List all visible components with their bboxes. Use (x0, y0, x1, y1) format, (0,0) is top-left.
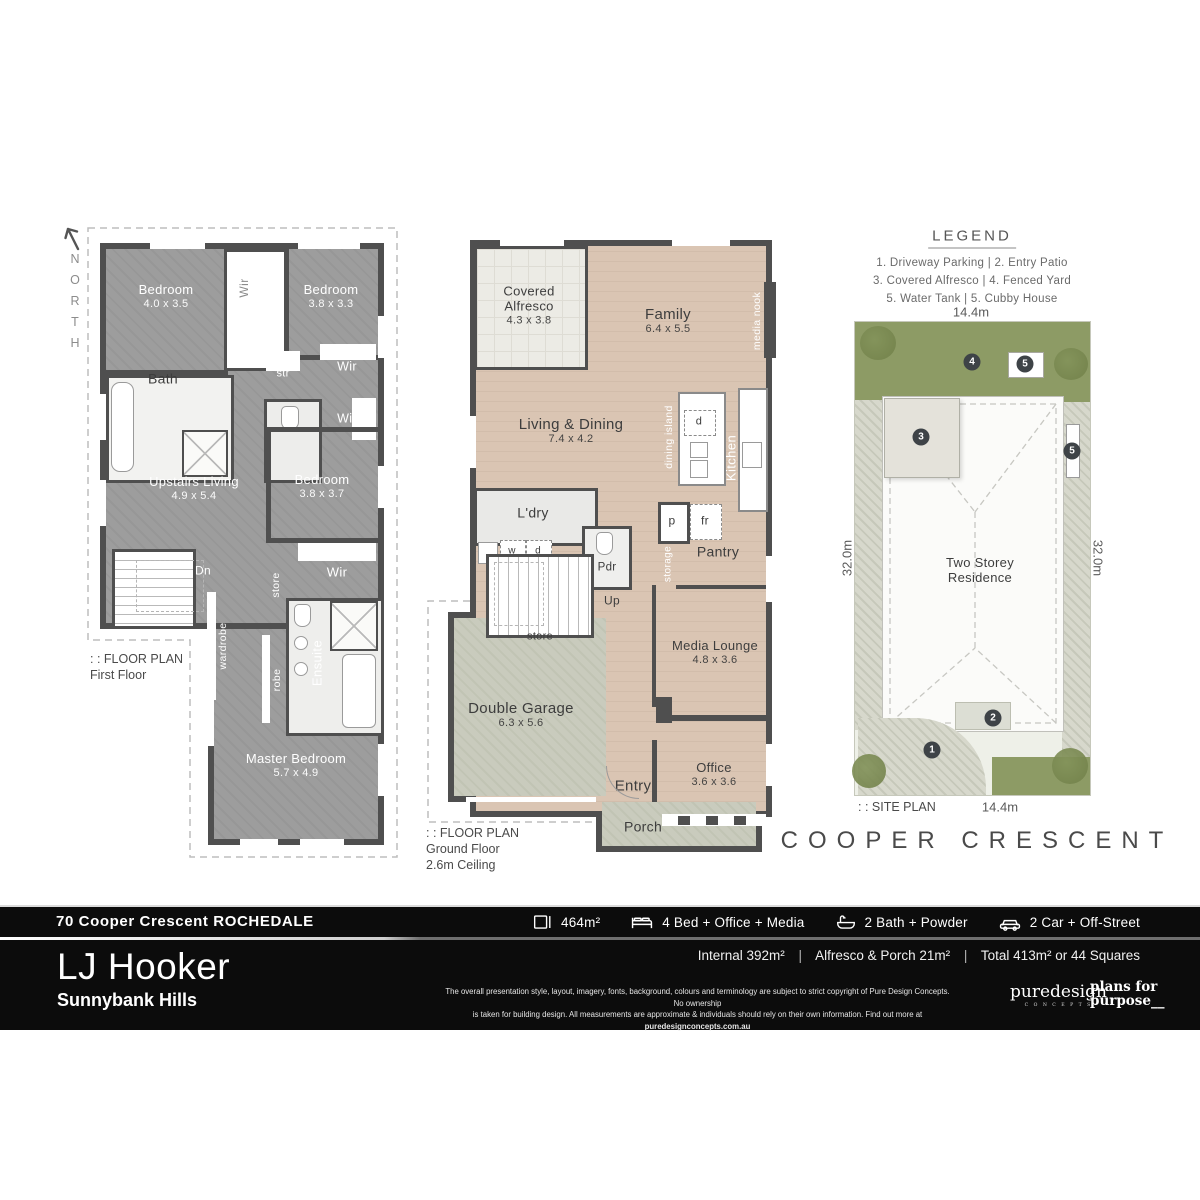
legend-row-3: 5. Water Tank | 5. Cubby House (817, 293, 1127, 305)
separator: | (799, 948, 803, 963)
room-label-office: Office 3.6 x 3.6 (692, 760, 737, 790)
plan-tag-extra: 2.6m Ceiling (426, 857, 519, 873)
shelf (262, 635, 270, 723)
address-text: 70 Cooper Crescent ROCHEDALE (56, 907, 314, 937)
room-name: Double Garage (468, 700, 574, 717)
shelf (298, 543, 376, 561)
shower (182, 430, 228, 477)
area-icon (531, 914, 553, 931)
dim-width-bottom: 14.4m (982, 800, 1018, 815)
stat-label: 4 Bed + Office + Media (662, 915, 804, 930)
room-dim: 3.8 x 3.3 (304, 297, 359, 312)
room-name: Family (645, 306, 691, 323)
window (150, 243, 205, 249)
north-label: NORTH (68, 252, 82, 357)
window (378, 744, 384, 796)
toilet (294, 604, 311, 627)
window (378, 316, 384, 358)
stats-row: 464m² 4 Bed + Office + Media 2 Bath + Po… (531, 907, 1140, 937)
brand-office: Sunnybank Hills (57, 990, 197, 1011)
room-label-bedroom1: Bedroom 4.0 x 3.5 (139, 282, 194, 312)
tree (852, 754, 886, 788)
wall (284, 249, 289, 359)
brand-logo: LJ Hooker (57, 946, 230, 988)
room-label-storage: storage (663, 546, 674, 582)
room-label-kitchen: Kitchen (724, 435, 739, 481)
tree (860, 326, 896, 360)
room-label-fr: fr (701, 514, 709, 529)
room-label-garage: Double Garage 6.3 x 5.6 (466, 701, 576, 731)
internal-area: Internal 392m² (698, 948, 785, 963)
window (500, 240, 564, 246)
site-marker-2: 2 (985, 710, 1002, 727)
room-name: Media Lounge (672, 638, 758, 653)
alfresco-area: Alfresco & Porch 21m² (815, 948, 950, 963)
garage-door-opening (466, 797, 596, 802)
room-label-alfresco: Covered Alfresco 4.3 x 3.8 (479, 284, 579, 329)
first-floor-plan-tag: : : FLOOR PLAN First Floor (90, 651, 183, 683)
room-dim: 6.4 x 5.5 (645, 322, 691, 337)
residence-line1: Two Storey (946, 555, 1014, 570)
window (298, 243, 360, 249)
site-marker-1: 1 (924, 742, 941, 759)
sink (690, 460, 708, 478)
plan-tag-name: First Floor (90, 667, 183, 683)
separator: | (964, 948, 968, 963)
room-label-bath: Bath (148, 372, 178, 387)
shelf (320, 344, 376, 360)
wall (266, 427, 378, 432)
floorplan-sheet: NORTH Bedroom 4.0 x 3.5 Wir Bedroom 3 (0, 0, 1200, 1200)
porch-pier (678, 816, 690, 825)
room-label-living-dining: Living & Dining 7.4 x 4.2 (519, 417, 624, 447)
room-dim: 4.8 x 3.6 (660, 653, 770, 668)
address-bar: 70 Cooper Crescent ROCHEDALE 464m² 4 Bed… (0, 907, 1200, 937)
wall (652, 585, 656, 707)
room-name: Master Bedroom (246, 751, 346, 766)
plan-tag-prefix: : : FLOOR PLAN (426, 825, 519, 841)
cooktop (742, 442, 762, 468)
legend-row-2: 3. Covered Alfresco | 4. Fenced Yard (817, 275, 1127, 287)
stat-label: 464m² (561, 915, 600, 930)
street-name: COOPER CRESCENT (781, 827, 1174, 855)
disclaimer-link: puredesignconcepts.com.au (645, 1022, 751, 1031)
ground-floor-plan-tag: : : FLOOR PLAN Ground Floor 2.6m Ceiling (426, 825, 519, 873)
room-label-upstairs-living: Upstairs Living 4.9 x 5.4 (139, 474, 249, 504)
room-label-dn: Dn (195, 564, 211, 579)
plans-line2: purpose__ (1090, 994, 1165, 1008)
room-label-bedroom2: Bedroom 3.8 x 3.3 (304, 282, 359, 312)
stair-guide (136, 560, 204, 612)
room-label-robe: robe (271, 669, 283, 692)
wall (266, 427, 271, 543)
entry-patio-area (955, 702, 1011, 730)
room-dim: 3.8 x 3.7 (295, 487, 350, 502)
wall (656, 697, 672, 723)
stat-label: 2 Car + Off-Street (1030, 915, 1140, 930)
plan-tag-prefix: : : FLOOR PLAN (90, 651, 183, 667)
basin (294, 662, 308, 676)
room-dim: 4.9 x 5.4 (139, 489, 249, 504)
room-label-wir-r1: Wir (337, 360, 357, 375)
window (766, 744, 772, 786)
plan-tag-name: Ground Floor (426, 841, 519, 857)
sink (690, 442, 708, 458)
stair-guide (494, 562, 544, 626)
stat-label: 2 Bath + Powder (865, 915, 968, 930)
room-label-dining-island: dining island (663, 405, 675, 469)
window (378, 466, 384, 508)
site-marker-3: 3 (913, 429, 930, 446)
room-name: Living & Dining (519, 416, 624, 433)
wall (672, 715, 766, 721)
room-label-bedroom3: Bedroom 3.8 x 3.7 (295, 472, 350, 502)
legend-row-1: 1. Driveway Parking | 2. Entry Patio (817, 257, 1127, 269)
dim-depth-right: 32.0m (1091, 540, 1106, 576)
window (100, 480, 106, 526)
site-marker-4: 4 (964, 354, 981, 371)
site-plan-tag: : : SITE PLAN (858, 799, 936, 815)
room-dim: 4.0 x 3.5 (139, 297, 194, 312)
room-label-media-lounge: Media Lounge 4.8 x 3.6 (660, 638, 770, 668)
room-name: Bedroom (295, 472, 350, 487)
shelf (207, 592, 216, 700)
areas-line: Internal 392m² | Alfresco & Porch 21m² |… (698, 948, 1140, 963)
site-marker-5-cubby: 5 (1017, 356, 1034, 373)
room-label-p: p (669, 514, 676, 529)
room-dim: 7.4 x 4.2 (519, 432, 624, 447)
room-dim: 3.6 x 3.6 (692, 775, 737, 790)
room-label-ldry: L'dry (517, 506, 548, 521)
room-label-ensuite: Ensuite (310, 640, 325, 686)
room-label-master: Master Bedroom 5.7 x 4.9 (236, 751, 356, 781)
room-name: Covered Alfresco (503, 284, 554, 314)
plans-for-purpose-logo: plans for purpose__ (1090, 980, 1165, 1008)
room-label-wir-r2: Wir (337, 412, 357, 427)
disclaimer-line1: The overall presentation style, layout, … (445, 987, 949, 1008)
window (300, 839, 344, 845)
room-label-pantry: Pantry (697, 545, 739, 560)
north-arrow-icon (60, 222, 90, 252)
room-name: Office (696, 760, 732, 775)
stat-baths: 2 Bath + Powder (835, 914, 968, 931)
window (672, 240, 730, 246)
stat-beds: 4 Bed + Office + Media (630, 914, 804, 931)
tree (1052, 748, 1088, 784)
room-label-wir-top: Wir (237, 278, 251, 297)
room-label-family: Family 6.4 x 5.5 (645, 307, 691, 337)
room-name: Upstairs Living (149, 474, 239, 489)
media-nook-wall (764, 282, 776, 358)
room-dim: 6.3 x 5.6 (466, 716, 576, 731)
total-area: Total 413m² or 44 Squares (981, 948, 1140, 963)
room-label-media-nook: media nook (751, 292, 763, 350)
room-dim: 5.7 x 4.9 (236, 766, 356, 781)
room-label-wir-mid: Wir (327, 565, 347, 580)
wall (676, 585, 766, 589)
toilet (596, 532, 613, 555)
room-label-d: d (696, 415, 702, 430)
porch-pier (734, 816, 746, 825)
tree (1054, 348, 1088, 380)
stat-area: 464m² (531, 914, 600, 931)
site-side-strip-left (855, 400, 883, 730)
window (470, 416, 476, 468)
legend-title: LEGEND (928, 228, 1016, 249)
plans-line1: plans for (1090, 980, 1165, 994)
residence-label: Two Storey Residence (946, 555, 1014, 585)
room-dim: 4.3 x 3.8 (479, 314, 579, 329)
disclaimer: The overall presentation style, layout, … (440, 986, 955, 1032)
room-label-wardrobe: wardrobe (217, 623, 229, 670)
car-icon (998, 914, 1022, 931)
room-label-up: Up (604, 594, 620, 609)
bed-icon (630, 914, 654, 931)
disclaimer-line2: is taken for building design. All measur… (473, 1010, 922, 1019)
wall (652, 740, 657, 802)
bath-icon (835, 914, 857, 931)
room-label-store2: store (527, 630, 553, 645)
dim-width-top: 14.4m (953, 305, 989, 320)
window (766, 556, 772, 602)
room-label-store: store (270, 572, 282, 597)
room-name: Bedroom (139, 282, 194, 297)
stat-cars: 2 Car + Off-Street (998, 914, 1140, 931)
room-name: Bedroom (304, 282, 359, 297)
site-marker-5-tank: 5 (1064, 443, 1081, 460)
bathtub (342, 654, 376, 728)
residence-line2: Residence (948, 570, 1012, 585)
shower (330, 601, 378, 651)
basin (294, 636, 308, 650)
window (240, 839, 278, 845)
room-label-pdr: Pdr (598, 561, 617, 576)
dim-depth-left: 32.0m (840, 540, 855, 576)
bathtub (111, 382, 134, 472)
branding-bar: Internal 392m² | Alfresco & Porch 21m² |… (0, 940, 1200, 1030)
room-label-str: str (276, 367, 289, 382)
room-label-porch: Porch (624, 820, 662, 835)
porch-pier (706, 816, 718, 825)
